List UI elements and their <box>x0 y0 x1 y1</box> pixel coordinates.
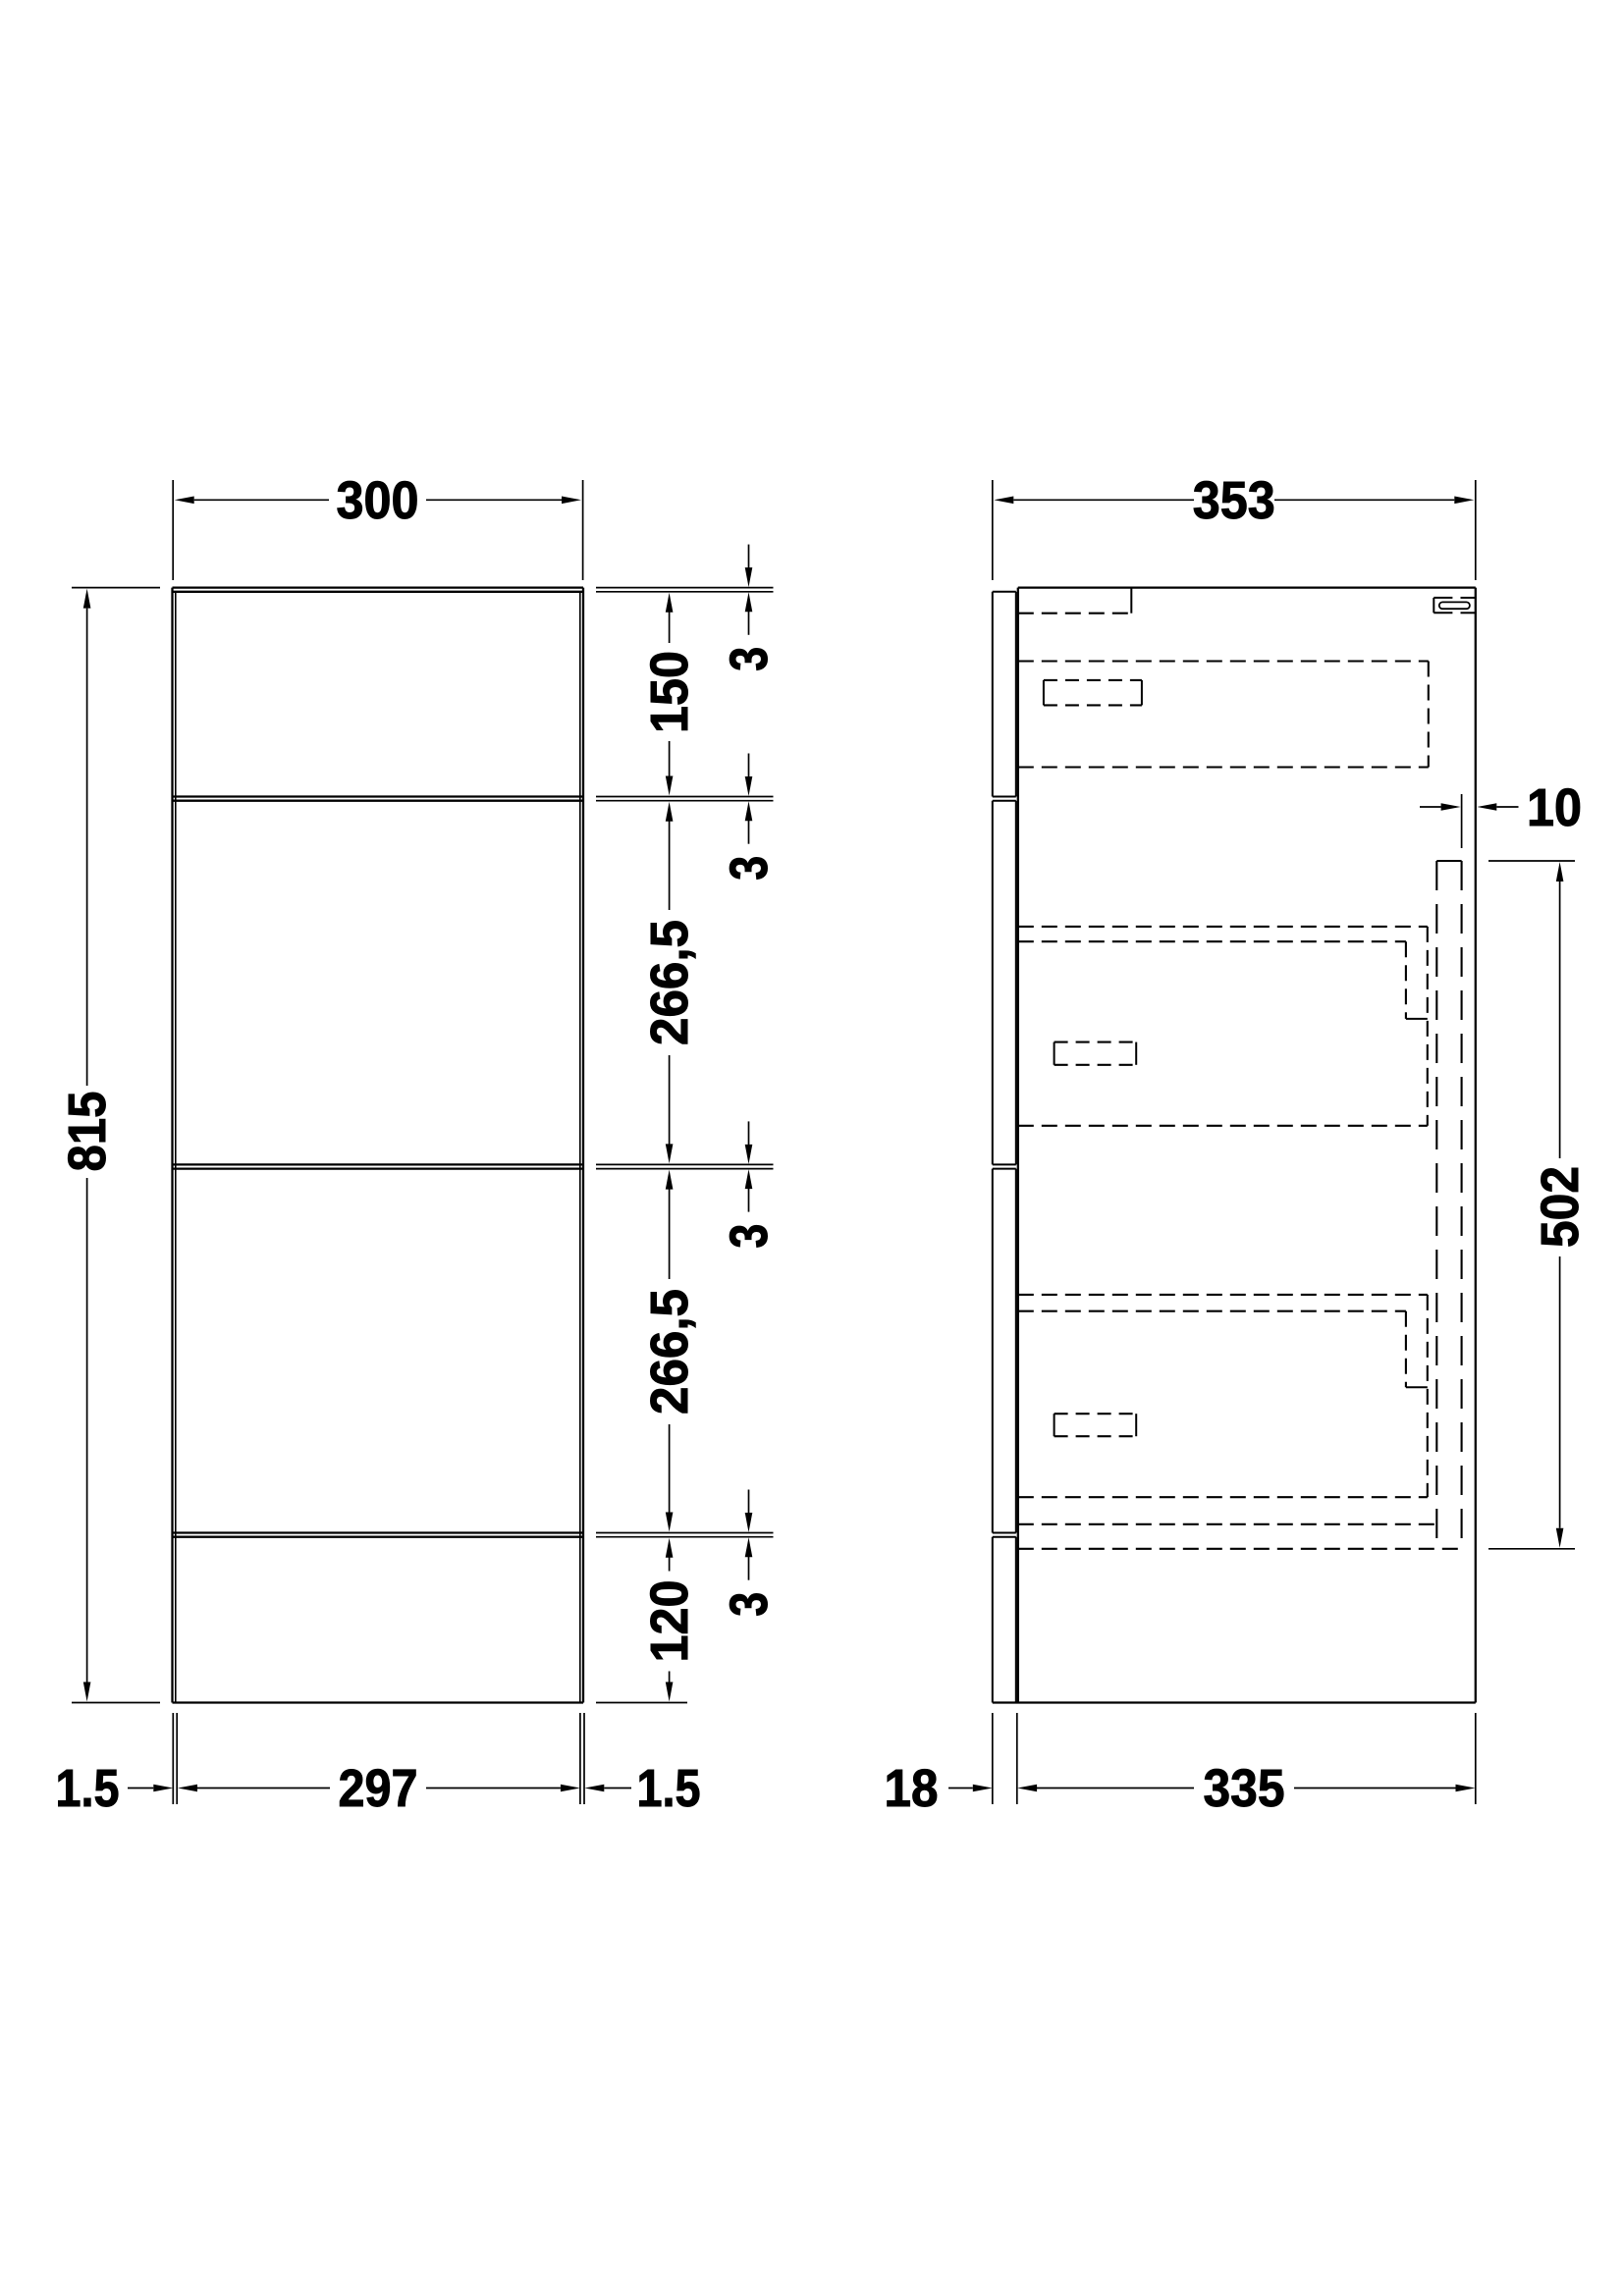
svg-text:3: 3 <box>720 856 779 881</box>
svg-text:266,5: 266,5 <box>640 920 699 1045</box>
svg-text:10: 10 <box>1527 778 1582 837</box>
svg-text:120: 120 <box>640 1580 699 1663</box>
svg-text:815: 815 <box>58 1092 117 1172</box>
svg-text:1.5: 1.5 <box>56 1759 120 1818</box>
svg-text:1.5: 1.5 <box>637 1759 701 1818</box>
svg-text:266,5: 266,5 <box>640 1289 699 1415</box>
svg-text:353: 353 <box>1193 471 1275 530</box>
svg-text:3: 3 <box>720 1224 779 1249</box>
svg-text:18: 18 <box>885 1759 939 1818</box>
svg-text:3: 3 <box>720 647 779 671</box>
svg-text:297: 297 <box>339 1759 418 1818</box>
svg-text:3: 3 <box>720 1592 779 1617</box>
svg-text:300: 300 <box>337 471 419 530</box>
svg-text:150: 150 <box>640 651 699 733</box>
svg-text:502: 502 <box>1531 1166 1590 1248</box>
svg-text:335: 335 <box>1204 1759 1285 1818</box>
